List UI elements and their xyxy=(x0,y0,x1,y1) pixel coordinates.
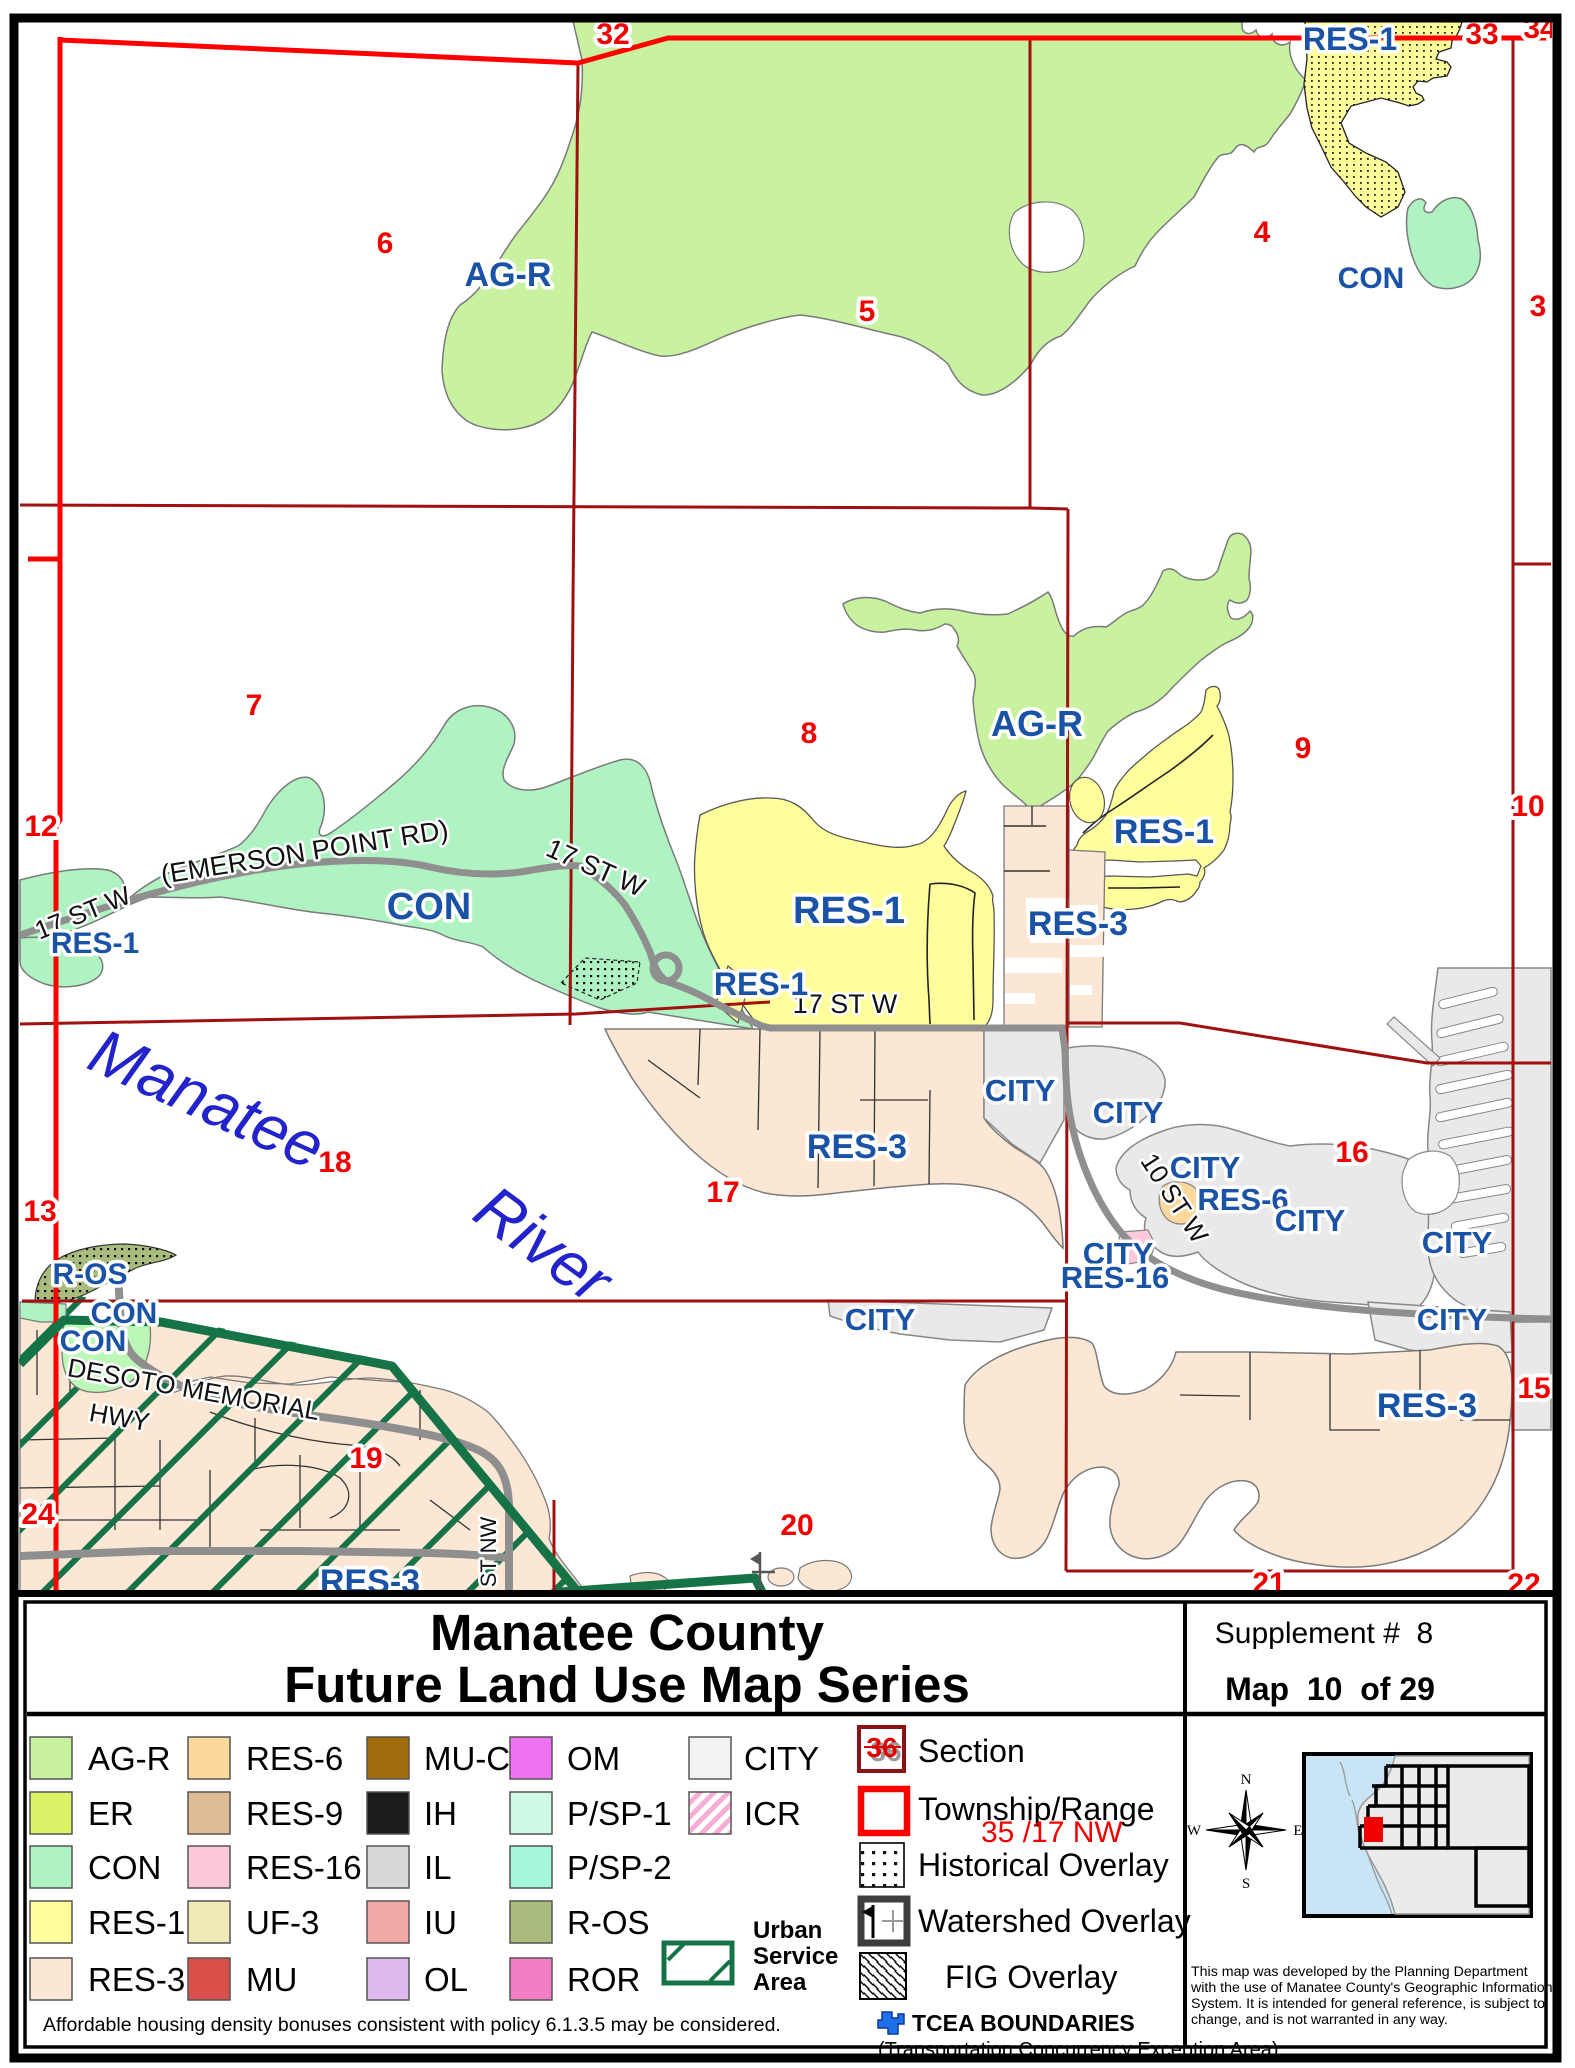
svg-text:E: E xyxy=(1293,1823,1302,1839)
svg-text:UF-3: UF-3 xyxy=(246,1904,319,1941)
svg-text:RES-9: RES-9 xyxy=(246,1795,343,1832)
svg-text:9: 9 xyxy=(1295,732,1312,765)
svg-text:Area: Area xyxy=(753,1969,807,1996)
svg-text:CITY: CITY xyxy=(1422,1225,1493,1260)
svg-text:AG-R: AG-R xyxy=(465,256,552,294)
svg-text:RES-1: RES-1 xyxy=(51,927,139,960)
svg-text:RES-1: RES-1 xyxy=(1303,21,1397,57)
svg-text:RES-3: RES-3 xyxy=(807,1128,907,1166)
svg-text:RES-16: RES-16 xyxy=(1061,1260,1170,1295)
svg-text:IL: IL xyxy=(424,1849,452,1886)
svg-text:RES-6: RES-6 xyxy=(246,1740,343,1777)
svg-text:RES-3: RES-3 xyxy=(1377,1387,1477,1425)
svg-text:16: 16 xyxy=(1335,1136,1368,1169)
svg-text:5: 5 xyxy=(859,295,876,328)
svg-text:20: 20 xyxy=(780,1509,813,1542)
svg-text:Service: Service xyxy=(753,1943,838,1970)
svg-text:CITY: CITY xyxy=(1093,1095,1164,1130)
svg-text:Future Land Use Map Series: Future Land Use Map Series xyxy=(284,1656,970,1713)
svg-text:10: 10 xyxy=(1511,790,1544,823)
svg-text:OM: OM xyxy=(567,1740,620,1777)
svg-text:IU: IU xyxy=(424,1904,457,1941)
svg-text:4: 4 xyxy=(1254,216,1271,249)
svg-text:OL: OL xyxy=(424,1961,468,1998)
svg-text:Affordable housing density bon: Affordable housing density bonuses consi… xyxy=(43,2014,781,2036)
svg-text:System. It is intended for gen: System. It is intended for general refer… xyxy=(1191,1996,1545,2012)
svg-text:Historical Overlay: Historical Overlay xyxy=(918,1847,1169,1883)
svg-text:RES-1: RES-1 xyxy=(88,1904,185,1941)
svg-text:35 /17 NW: 35 /17 NW xyxy=(981,1816,1123,1849)
svg-text:MU: MU xyxy=(246,1961,297,1998)
svg-text:IH: IH xyxy=(424,1795,457,1832)
svg-text:Watershed Overlay: Watershed Overlay xyxy=(918,1903,1191,1939)
svg-text:18: 18 xyxy=(318,1146,351,1179)
svg-text:RES-3: RES-3 xyxy=(1028,905,1128,943)
svg-text:RES-1: RES-1 xyxy=(793,890,905,932)
svg-text:8: 8 xyxy=(801,717,818,750)
svg-text:32: 32 xyxy=(596,18,629,51)
svg-text:RES-16: RES-16 xyxy=(246,1849,362,1886)
svg-text:MU-C: MU-C xyxy=(424,1740,510,1777)
svg-text:17: 17 xyxy=(706,1176,739,1209)
svg-text:CITY: CITY xyxy=(1417,1302,1488,1337)
svg-text:ICR: ICR xyxy=(744,1795,801,1832)
svg-text:19: 19 xyxy=(349,1442,382,1475)
svg-text:ROR: ROR xyxy=(567,1961,640,1998)
svg-text:13: 13 xyxy=(23,1195,56,1228)
svg-text:W: W xyxy=(1187,1823,1202,1839)
svg-text:6: 6 xyxy=(377,227,394,260)
svg-text:17 ST W: 17 ST W xyxy=(793,989,898,1019)
svg-text:7: 7 xyxy=(246,689,263,722)
svg-text:Section: Section xyxy=(918,1733,1025,1769)
svg-text:Manatee County: Manatee County xyxy=(430,1604,825,1661)
svg-text:AG-R: AG-R xyxy=(88,1740,171,1777)
svg-text:Urban: Urban xyxy=(753,1917,822,1944)
svg-text:24: 24 xyxy=(21,1498,55,1531)
svg-text:CON: CON xyxy=(88,1849,161,1886)
svg-text:FIG Overlay: FIG Overlay xyxy=(945,1959,1117,1995)
svg-text:CITY: CITY xyxy=(744,1740,819,1777)
svg-text:CITY: CITY xyxy=(845,1302,916,1337)
svg-text:12: 12 xyxy=(24,810,57,843)
svg-text:CITY: CITY xyxy=(1170,1150,1241,1185)
svg-text:R-OS: R-OS xyxy=(53,1258,128,1291)
svg-text:CON: CON xyxy=(60,1325,127,1358)
svg-text:33: 33 xyxy=(1465,18,1498,51)
svg-text:3: 3 xyxy=(1530,290,1547,323)
svg-text:R-OS: R-OS xyxy=(567,1904,650,1941)
svg-text:RES-1: RES-1 xyxy=(1114,813,1214,851)
svg-text:CITY: CITY xyxy=(1275,1203,1346,1238)
svg-text:ST NW: ST NW xyxy=(476,1517,501,1588)
svg-text:AG-R: AG-R xyxy=(991,703,1083,744)
svg-text:change, and is not warranted i: change, and is not warranted in any way. xyxy=(1191,2012,1448,2028)
svg-text:Supplement # 8: Supplement # 8 xyxy=(1215,1617,1433,1650)
svg-text:P/SP-2: P/SP-2 xyxy=(567,1849,672,1886)
svg-text:with the use of Manatee County: with the use of Manatee County's Geograp… xyxy=(1190,1980,1553,1996)
svg-text:15: 15 xyxy=(1517,1372,1550,1405)
svg-text:S: S xyxy=(1242,1876,1250,1892)
svg-text:RES-1: RES-1 xyxy=(714,966,808,1002)
svg-text:RES-3: RES-3 xyxy=(88,1961,185,1998)
svg-text:P/SP-1: P/SP-1 xyxy=(567,1795,672,1832)
svg-text:CON: CON xyxy=(1338,262,1405,295)
svg-text:ER: ER xyxy=(88,1795,134,1832)
svg-text:TCEA BOUNDARIES: TCEA BOUNDARIES xyxy=(912,2010,1135,2036)
svg-text:Map 10 of 29: Map 10 of 29 xyxy=(1225,1671,1435,1707)
svg-text:CON: CON xyxy=(387,886,471,928)
svg-text:CITY: CITY xyxy=(985,1073,1056,1108)
svg-text:N: N xyxy=(1241,1772,1252,1788)
svg-text:This map was developed by the: This map was developed by the Planning D… xyxy=(1191,1964,1528,1980)
